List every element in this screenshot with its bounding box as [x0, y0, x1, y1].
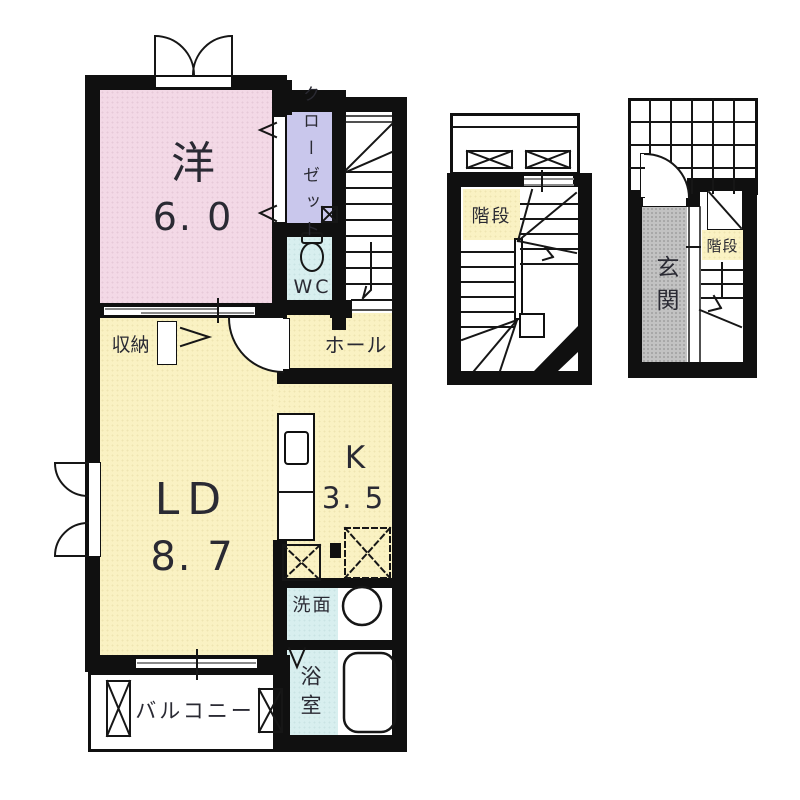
wall-left — [85, 75, 100, 672]
label-kitchen-area: 3. 5 — [316, 480, 391, 516]
bedroom-entry-threshold — [154, 75, 233, 89]
entry-understair-box — [707, 190, 743, 230]
bedroom-ld-sliding-door — [103, 306, 256, 316]
hall-door-leaf — [277, 318, 290, 370]
wall-kitchen-stub — [330, 543, 341, 558]
label-storage: 収納 — [103, 330, 158, 356]
label-hall: ホール — [318, 330, 394, 356]
kitchen-sink — [284, 431, 309, 465]
label-bathroom: 浴室 — [290, 655, 330, 733]
label-living-dining-area: 8. 7 — [139, 534, 246, 580]
entry-wall-left — [628, 190, 642, 378]
label-mid-stairs: 階段 — [463, 201, 520, 228]
mid-stair-landing — [519, 313, 545, 338]
balcony-sliding-window — [135, 658, 258, 669]
bedroom-double-door-arc — [155, 36, 232, 75]
bathtub-area — [338, 650, 392, 735]
label-living-dining: LD — [147, 474, 237, 524]
label-balcony: バルコニー — [128, 696, 262, 724]
ld-window-threshold — [88, 462, 101, 557]
label-entry-stairs: 階段 — [701, 233, 744, 257]
label-entrance: 玄関 — [648, 243, 682, 333]
label-west-room: 洋 — [165, 132, 221, 186]
mid-stair-rail — [514, 238, 523, 320]
label-washroom: 洗面 — [287, 592, 338, 616]
wall-right — [392, 97, 407, 750]
mid-sliding-door — [523, 175, 574, 187]
storage-door-panel — [157, 321, 177, 365]
staircase-main-area — [345, 112, 392, 305]
wall-washroom-bath — [287, 640, 407, 650]
washroom-sink-area — [338, 588, 392, 640]
entry-wall-bottom — [628, 362, 757, 378]
label-kitchen: K — [339, 440, 371, 476]
floor-plan-canvas: 洋 6. 0 クローゼット WC 収納 ホール LD 8. 7 K 3. 5 洗… — [0, 0, 800, 800]
label-west-room-area: 6. 0 — [140, 194, 246, 240]
wall-hall-kitchen — [277, 368, 407, 384]
ld-left-window-arcs — [55, 463, 88, 556]
mid-balcony-outline — [450, 113, 580, 175]
entry-wall-right — [743, 178, 757, 378]
wall-ld-washcolumn — [273, 540, 287, 752]
label-wc: WC — [287, 272, 338, 302]
wall-stairs-hall-stub — [330, 300, 352, 318]
closet-door-panel — [273, 116, 286, 223]
wall-bath-bottom — [285, 735, 407, 752]
entrance-door-leaf — [640, 153, 650, 198]
wall-washroom-top — [287, 578, 392, 588]
label-closet: クローゼット — [286, 116, 332, 216]
entry-hall-strip — [687, 207, 700, 362]
